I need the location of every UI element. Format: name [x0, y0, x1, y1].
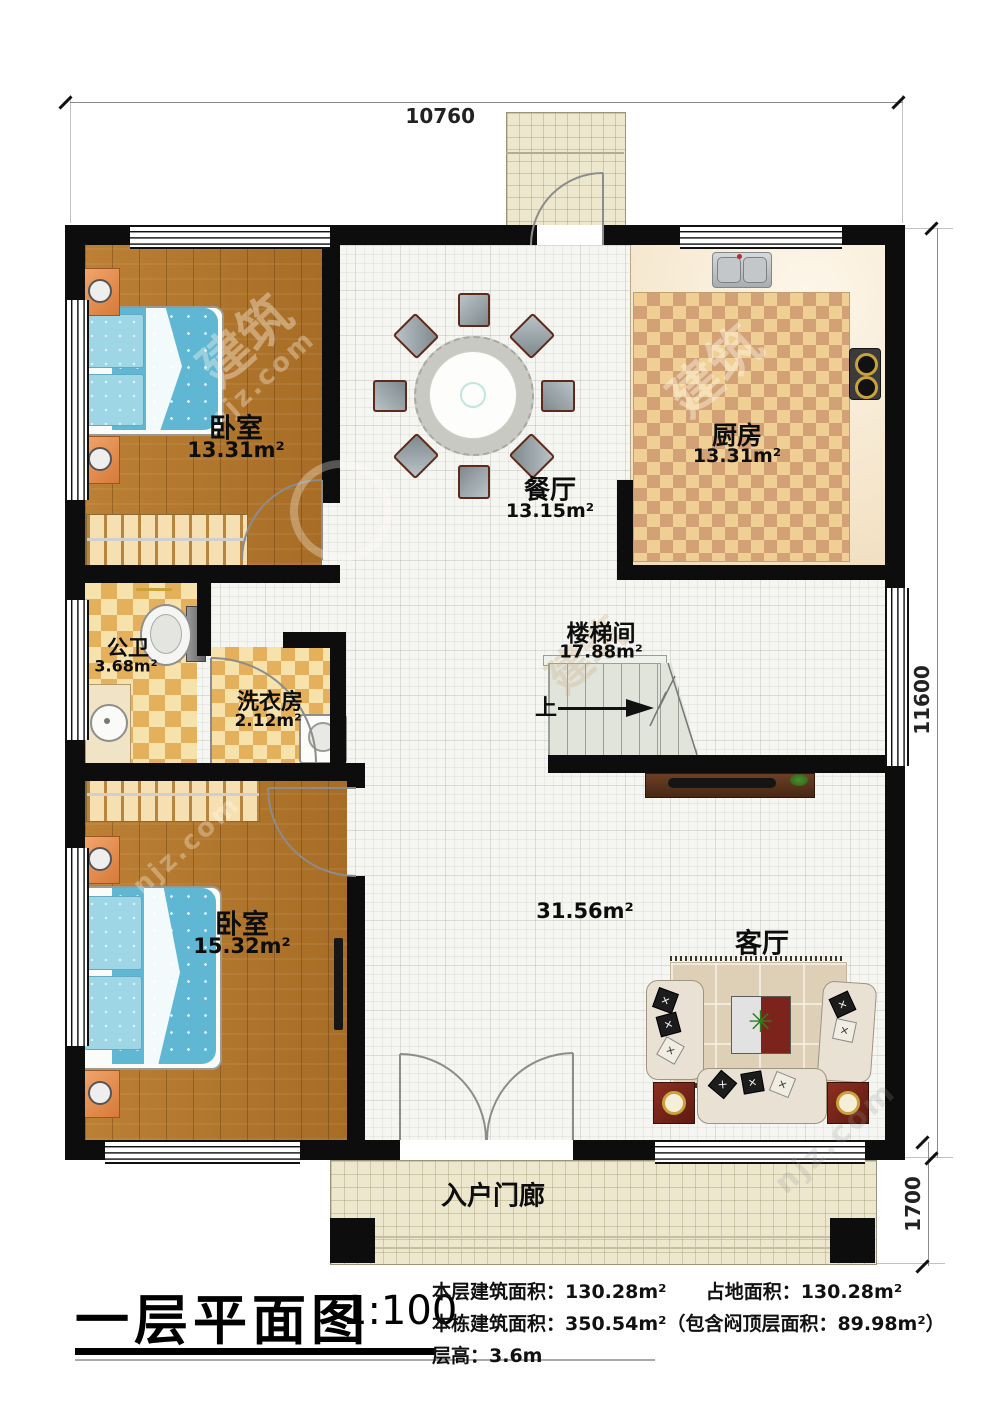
entry-door-left-arc	[400, 1054, 486, 1140]
stats-line3: 层高：3.6m	[432, 1341, 542, 1368]
bathroom-area: 3.68m²	[94, 657, 157, 676]
kitchen-area: 13.31m²	[693, 445, 781, 467]
laundry-area: 2.12m²	[234, 711, 301, 731]
living-label: 客厅	[735, 922, 789, 961]
title-underline-thin	[75, 1359, 655, 1361]
title-underline-thick	[75, 1348, 435, 1355]
bedroom2-door-arc	[268, 788, 356, 876]
stats-line1: 本层建筑面积：130.28m² 占地面积：130.28m²	[432, 1277, 902, 1304]
stats-land-area: 占地面积：130.28m²	[706, 1281, 902, 1303]
dining-area: 13.15m²	[506, 500, 594, 522]
dimension-label-top: 10760	[405, 104, 475, 128]
rear-door-arc	[531, 173, 603, 245]
dimension-line-top	[70, 102, 903, 103]
stats-floor-area: 本层建筑面积：130.28m²	[432, 1281, 666, 1303]
stair-break-symbol	[650, 676, 675, 726]
bedroom2-area: 15.32m²	[193, 934, 291, 958]
dimension-line-right	[937, 228, 938, 1158]
floor-plan-canvas: ✳	[0, 0, 1000, 1416]
stair-cut-line	[668, 663, 697, 755]
dimension-label-right: 11600	[910, 665, 934, 735]
stats-line2: 本栋建筑面积：350.54m²（包含闷顶层面积：89.98m²）	[432, 1309, 945, 1336]
bedroom1-area: 13.31m²	[187, 438, 285, 462]
stair-up-label: 上	[535, 690, 557, 722]
stairwell-area: 17.88m²	[559, 642, 643, 663]
entry-door-right-arc	[487, 1053, 573, 1140]
entry-porch-label: 入户门廊	[441, 1176, 545, 1213]
plan-title: 一层平面图	[75, 1276, 370, 1355]
living-area: 31.56m²	[536, 899, 634, 923]
dimension-label-porch: 1700	[901, 1176, 925, 1232]
